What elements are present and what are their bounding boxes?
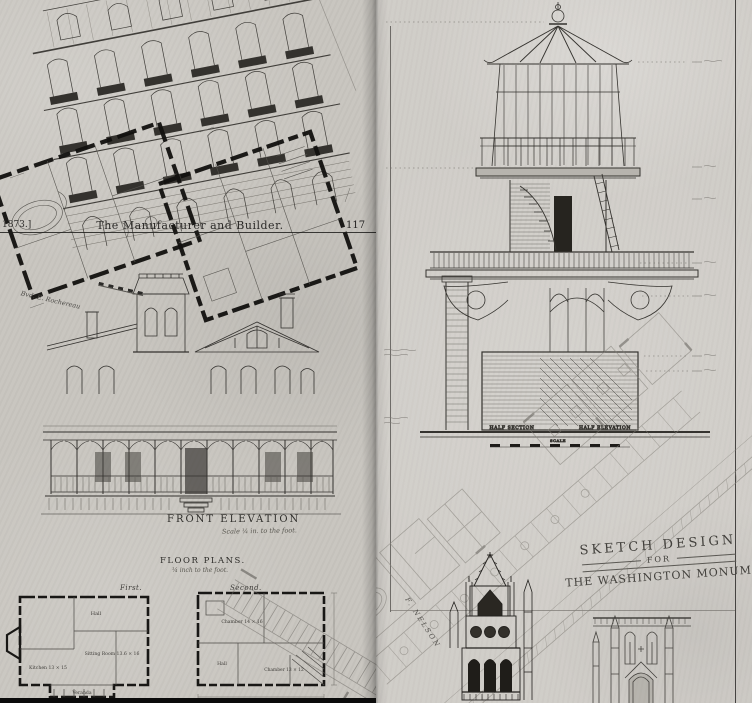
cathedral-facade-drawing: [585, 608, 700, 703]
house-elevation-drawing: [35, 272, 350, 522]
room-label: Veranda: [71, 690, 91, 696]
front-elevation-caption: FRONT ELEVATION: [167, 514, 300, 525]
journal-title: The Manufacturer and Builder.: [80, 219, 300, 232]
scanned-drawings-collage: 1873.] The Manufacturer and Builder. 117…: [0, 0, 752, 703]
room-label: Hall: [91, 611, 102, 617]
journal-header-rule: [0, 232, 376, 233]
room-label: Hall: [217, 661, 227, 667]
tilted-stair-band-sketch: [235, 592, 376, 703]
journal-page-number: 117: [346, 220, 365, 231]
scan-edge-strip: [0, 698, 376, 703]
journal-date: 1873.]: [2, 220, 31, 230]
title-line-2: FOR: [647, 554, 672, 565]
dash-rule: [677, 554, 736, 559]
front-elevation-scale-note: Scale ¼ in. to the foot.: [222, 526, 297, 535]
room-label: Sitting Room 13.6 × 16: [85, 651, 140, 657]
room-label: Kitchen 13 × 15: [29, 665, 67, 671]
gothic-spire-drawing: [440, 552, 540, 703]
right-drawing-page: HALF SECTION SCALE HALF ELEVATION: [376, 0, 752, 703]
dash-rule: [582, 560, 641, 565]
left-journal-page: 1873.] The Manufacturer and Builder. 117…: [0, 0, 376, 703]
